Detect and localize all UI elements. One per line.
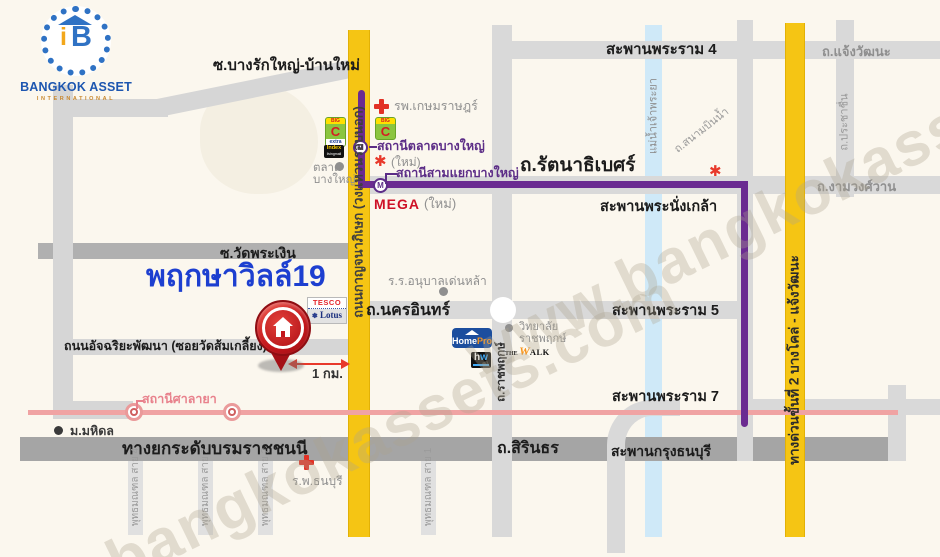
homeworks-logo: hw: [471, 352, 491, 368]
lotus-text: ✽ Lotus: [308, 309, 346, 323]
new-station-icon: ✱: [374, 154, 387, 169]
road-label-phutthamonthon1: พุทธมณฑล สาย 1: [424, 448, 434, 526]
road-label-saphan-rama4: สะพานพระราม 4: [606, 42, 717, 57]
place-label-denla-school: ร.ร.อนุบาลเด่นหล้า: [388, 275, 487, 287]
bangkok-asset-logo: i B BANGKOK ASSET INTERNATIONAL: [14, 6, 138, 102]
road-label-saphan-rama5: สะพานพระราม 5: [612, 304, 719, 319]
road-label-saphan-krungthon: สะพานกรุงธนบุรี: [611, 444, 711, 458]
railway-pink-line: [28, 410, 898, 415]
mrt-m-letter: M: [377, 181, 384, 190]
road-left-vertical: [53, 85, 73, 419]
road-label-wat-phra-ngoen: ซ.วัดพระเงิน: [220, 246, 296, 260]
place-label-kasemrad-hospital: รพ.เกษมราษฎร์: [394, 100, 478, 113]
talad-station-connector: [369, 146, 377, 148]
road-vertical-southeast: [888, 385, 906, 461]
homepro-pro-text: Pro: [477, 336, 492, 346]
hospital-cross-icon-kasemrad: [374, 99, 389, 114]
road-label-ratchaphruek: ถ.ราชพฤกษ์: [496, 342, 508, 402]
new-interchange-icon: ✱: [709, 164, 722, 179]
bigc-c-letter: C: [326, 124, 345, 139]
road-krungthon-curve: [607, 400, 680, 553]
road-label-saphan-phranangklao: สะพานพระนั่งเกล้า: [600, 200, 717, 215]
road-label-atchariya: ถนนอัจฉริยะพัฒนา (ซอยวัดส้มเกลี้ยง): [64, 340, 267, 353]
road-label-ngamwongwan: ถ.งามวงศ์วาน: [817, 180, 896, 193]
mega-logo-text: MEGA: [374, 197, 420, 211]
road-label-phutthamonthon4: พุทธมณฑล สาย 4: [131, 448, 141, 526]
road-label-sanambinnam: ถ.สนามบินน้ำ: [673, 106, 731, 155]
road-label-phutthamonthon2: พุทธมณฑล สาย 2: [261, 448, 271, 526]
thewalk-w-letter: W: [519, 344, 530, 358]
mrt-purple-line-east: [358, 181, 748, 188]
bigc-extra-logo: BIG C extra: [325, 117, 346, 147]
project-title: พฤกษาวิลล์19: [146, 262, 326, 292]
road-label-borommaratchachonnani: ทางยกระดับบรมราชชนนี: [122, 440, 308, 457]
place-label-college-line2: ราชพฤกษ์: [519, 334, 566, 345]
house-icon-door: [281, 331, 285, 337]
road-label-rattanathibet: ถ.รัตนาธิเบศร์: [520, 156, 635, 175]
road-label-prachachuen: ถ.ประชาชื่น: [840, 93, 851, 150]
place-label-mahidol: ม.มหิดล: [70, 425, 114, 438]
road-label-expressway2: ทางด่วนขั้นที่ 2 บางโคล่ - แจ้งวัฒนะ: [787, 255, 801, 465]
road-label-bang-rak-yai: ซ.บางรักใหญ่-บ้านใหม่: [213, 58, 360, 73]
pin-ring: [262, 307, 304, 349]
tesco-lotus-logo: TESCO ✽ Lotus: [307, 297, 347, 324]
laurel-wreath-icon: i B: [41, 6, 111, 76]
lotus-flower-icon: ✽: [312, 312, 318, 320]
station-label-salaya: สถานีศาลายา: [142, 393, 217, 406]
road-ratchaphruek: [492, 25, 512, 537]
new-label: (ใหม่): [391, 156, 421, 168]
thewalk-alk-text: ALK: [530, 347, 550, 357]
road-label-kanchanaphisek: ถนนกาญจนาภิเษก (วงแหวนรอบนอก): [352, 106, 365, 318]
mrt-purple-line-south: [741, 181, 748, 427]
logo-monogram-i: i: [60, 25, 67, 50]
homepro-logo: HomePro: [452, 328, 492, 348]
hw-w-letter: w: [480, 352, 488, 363]
index-sub-text: livingmall: [324, 152, 344, 156]
road-label-saphan-rama7: สะพานพระราม 7: [612, 390, 719, 405]
scale-distance-label: 1 กม.: [312, 367, 343, 380]
mega-new-label: (ใหม่): [424, 197, 456, 210]
map-canvas: M M ซ.บางรักใหญ่-บ้านใหม่ สะพานพระราม 4 …: [0, 0, 940, 557]
road-wat-phra-ngoen: [38, 243, 348, 259]
river-label-chao-phraya: แม่น้ำเจ้าพระยา: [649, 78, 660, 154]
logo-monogram-b: B: [71, 23, 92, 52]
bigc-logo-bangyai: BIG C: [375, 117, 396, 140]
logo-subtitle-text: INTERNATIONAL: [14, 96, 138, 102]
house-icon: [273, 317, 293, 326]
location-pin-marker: [252, 300, 310, 374]
bigc-c-letter: C: [376, 124, 395, 139]
place-label-thonburi-hospital: ร.พ.ธนบุรี: [292, 475, 343, 487]
index-living-mall-logo: Index livingmall: [324, 145, 344, 158]
pin-balloon: [255, 300, 311, 356]
mahidol-dot: [54, 426, 63, 435]
road-label-nakhon-in: ถ.นครอินทร์: [366, 303, 450, 319]
college-dot: [505, 324, 513, 332]
tesco-text: TESCO: [308, 298, 346, 309]
road-label-phutthamonthon3: พุทธมณฑล สาย 3: [201, 448, 211, 526]
homepro-home-text: Home: [452, 336, 477, 346]
nakhon-in-roundabout: [490, 297, 516, 323]
lotus-word: Lotus: [320, 310, 342, 320]
index-text: Index: [324, 145, 344, 152]
logo-name-text: BANGKOK ASSET: [14, 80, 138, 94]
road-label-sirinthorn: ถ.สิรินธร: [497, 441, 559, 457]
rail-station-icon-2: [223, 403, 241, 421]
road-label-chaengwattana: ถ.แจ้งวัฒนะ: [822, 45, 891, 58]
place-label-college-line1: วิทยาลัย: [519, 322, 558, 333]
place-label-talad-line2: บางใหญ่: [313, 175, 355, 187]
station-label-talad-bangyai: สถานีตลาดบางใหญ่: [377, 140, 485, 153]
place-label-talad-line1: ตลาด: [313, 163, 341, 175]
denla-school-dot: [439, 287, 448, 296]
